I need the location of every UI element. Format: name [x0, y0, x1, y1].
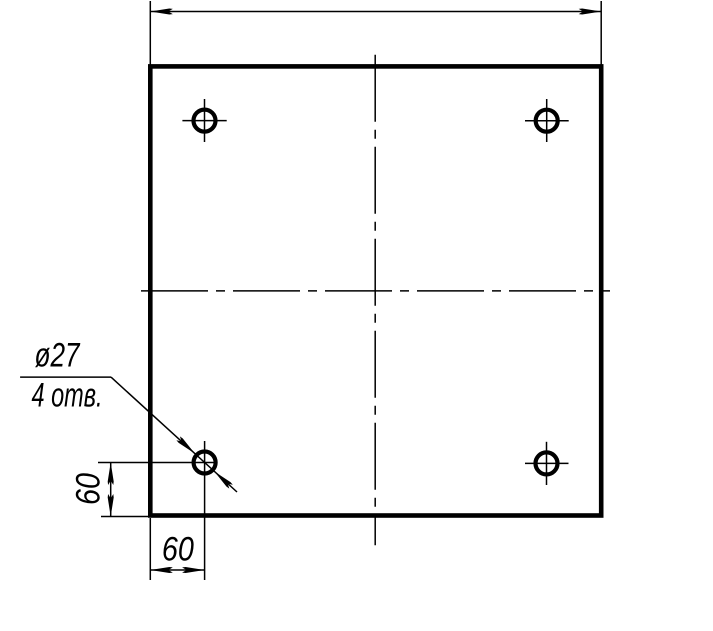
svg-text:4 отв.: 4 отв.	[32, 377, 103, 415]
svg-text:60: 60	[162, 531, 194, 569]
svg-text:60: 60	[70, 473, 108, 505]
svg-text:ø27: ø27	[35, 337, 81, 375]
